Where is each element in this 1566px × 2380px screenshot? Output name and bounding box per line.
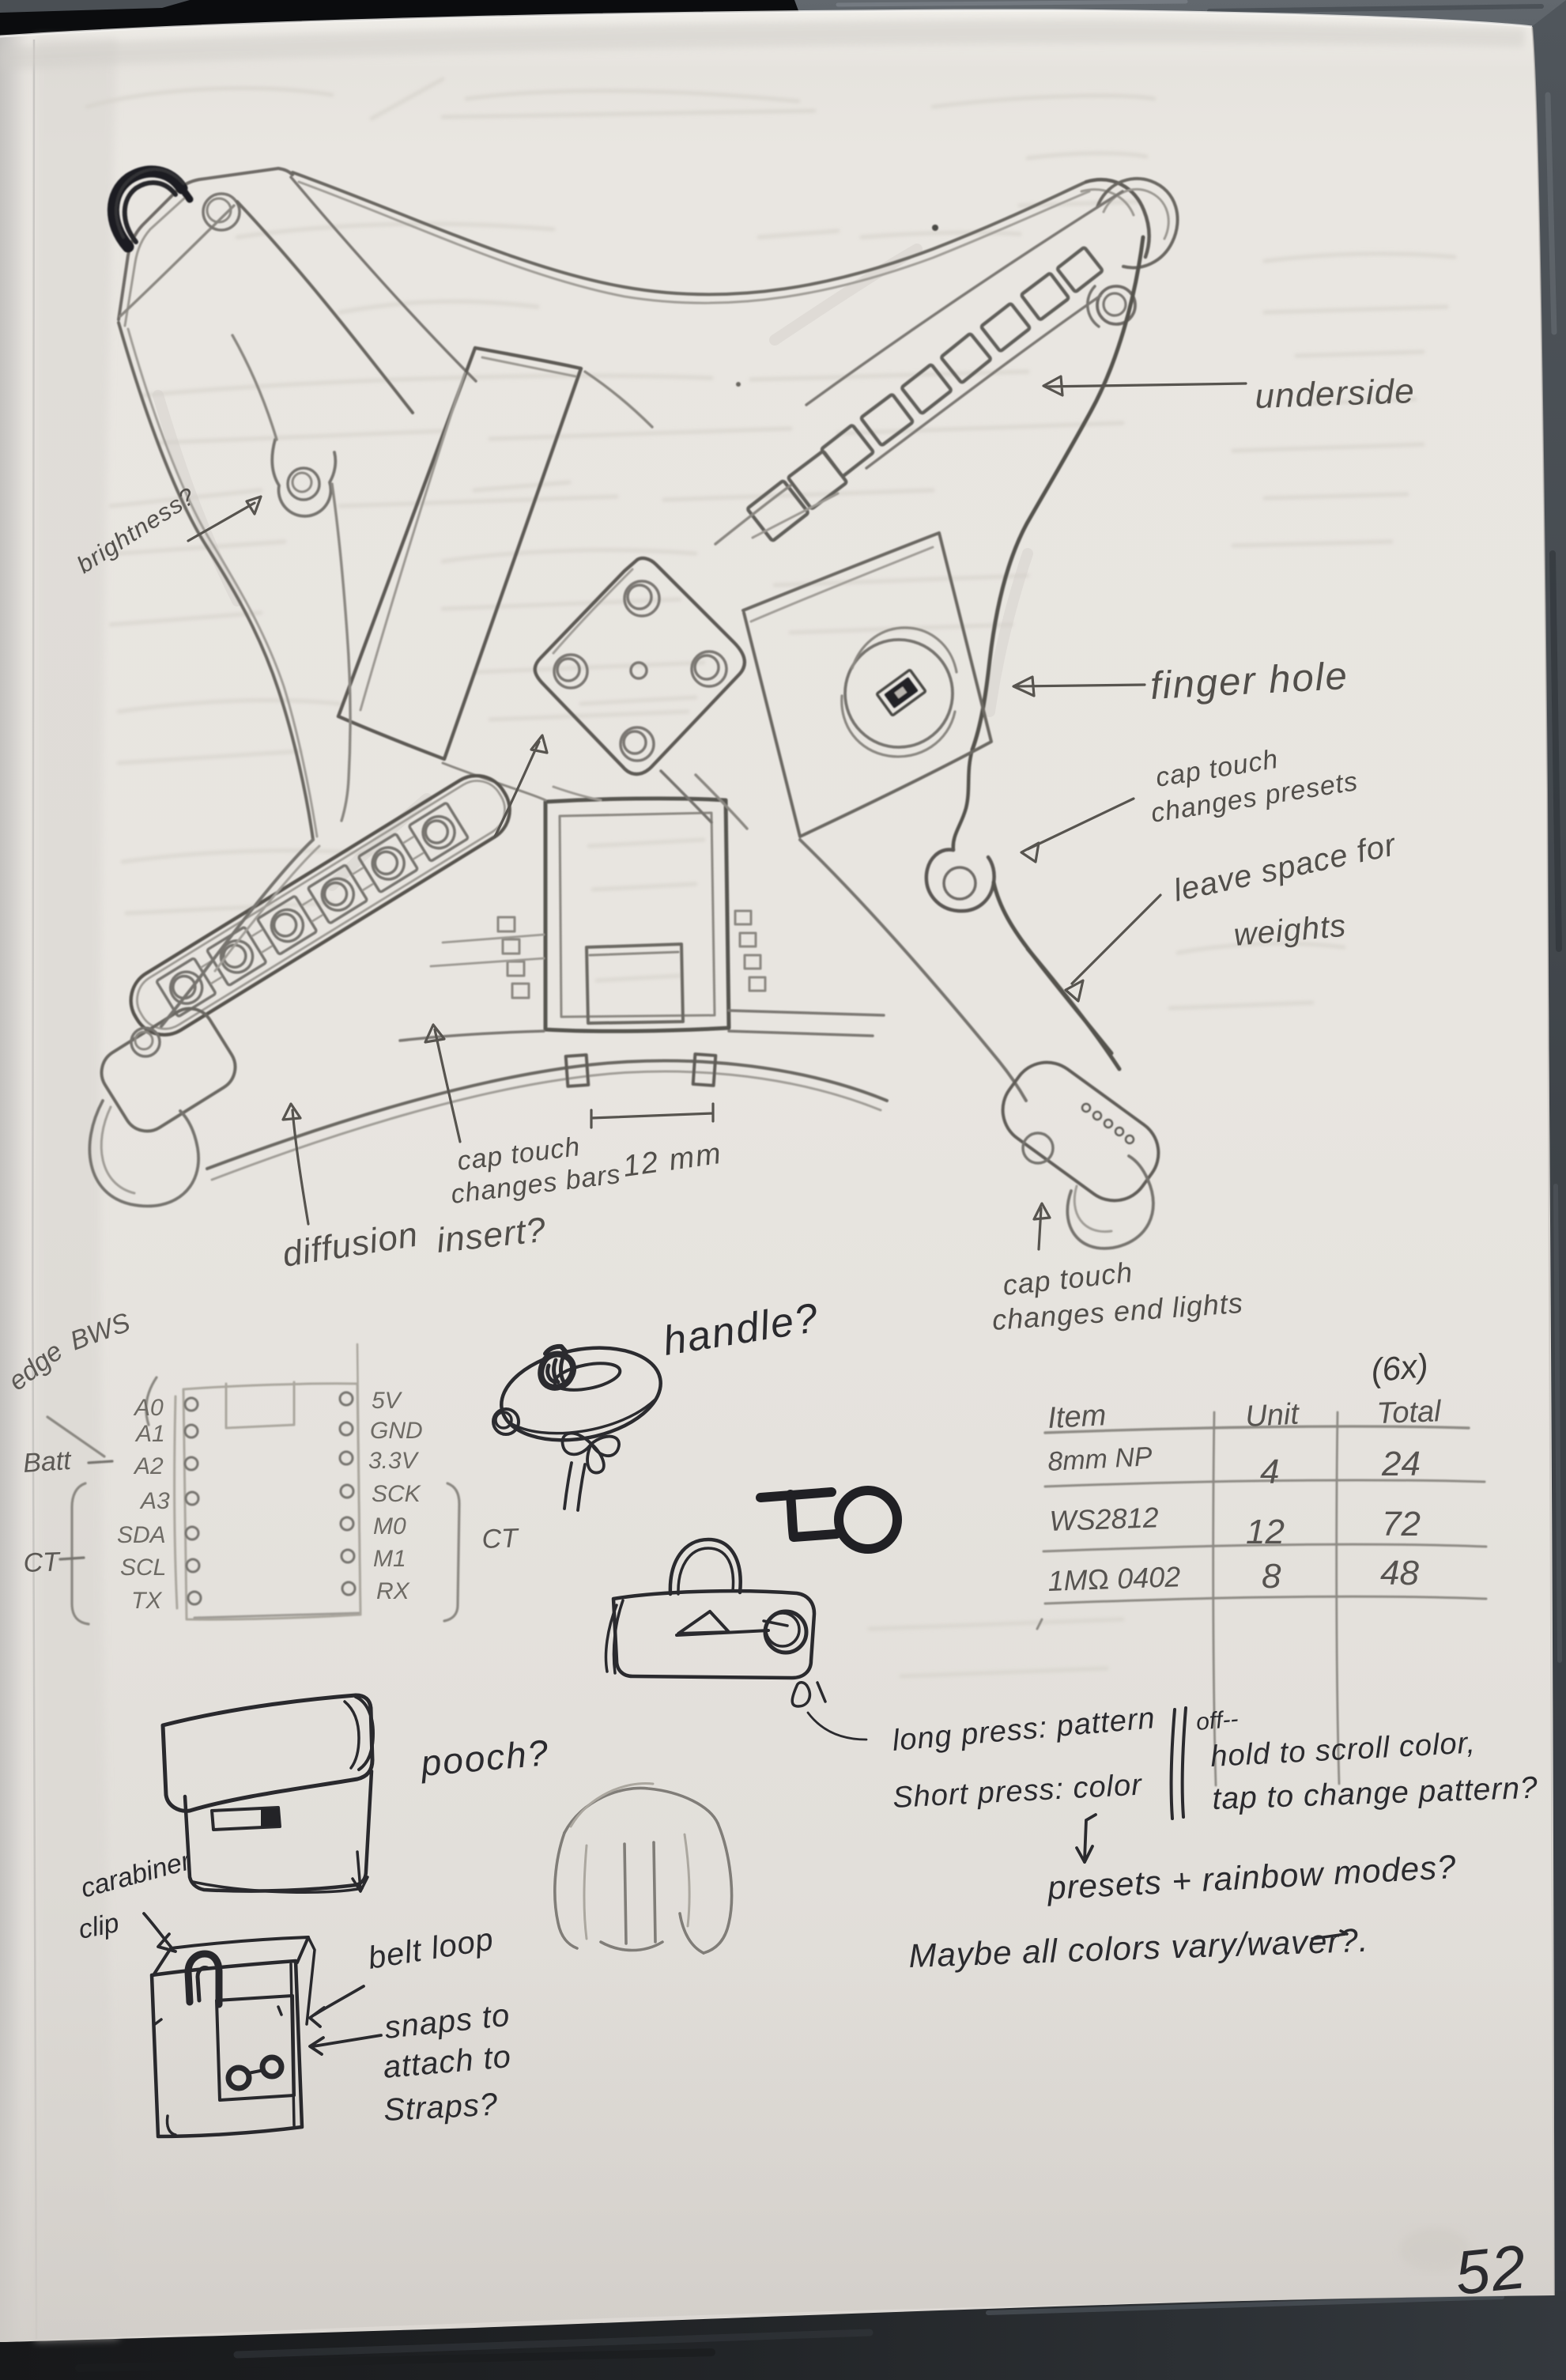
svg-text:CT: CT <box>23 1547 62 1578</box>
svg-text:24: 24 <box>1381 1445 1421 1483</box>
svg-text:8mm NP: 8mm NP <box>1047 1441 1153 1477</box>
svg-text:GND: GND <box>370 1418 423 1444</box>
svg-text:1MΩ 0402: 1MΩ 0402 <box>1047 1560 1181 1597</box>
svg-text:Batt: Batt <box>22 1445 74 1479</box>
svg-text:off--: off-- <box>1195 1706 1240 1736</box>
svg-text:72: 72 <box>1382 1505 1421 1543</box>
svg-text:4: 4 <box>1260 1453 1279 1491</box>
svg-text:48: 48 <box>1380 1554 1419 1592</box>
svg-text:3.3V: 3.3V <box>368 1448 420 1474</box>
svg-text:M1: M1 <box>373 1546 406 1572</box>
svg-text:WS2812: WS2812 <box>1049 1501 1159 1537</box>
svg-text:TX: TX <box>131 1588 162 1614</box>
svg-text:Unit: Unit <box>1244 1397 1300 1434</box>
svg-text:12: 12 <box>1246 1513 1285 1551</box>
svg-text:CT: CT <box>481 1523 520 1555</box>
svg-text:Straps?: Straps? <box>383 2087 499 2128</box>
svg-text:A3: A3 <box>139 1488 170 1514</box>
svg-text:52: 52 <box>1452 2231 1530 2308</box>
svg-text:8: 8 <box>1262 1557 1281 1596</box>
svg-text:Total: Total <box>1376 1395 1443 1430</box>
svg-text:A0: A0 <box>133 1395 164 1421</box>
svg-text:SCK: SCK <box>372 1481 422 1507</box>
svg-text:RX: RX <box>376 1578 410 1604</box>
svg-text:Item: Item <box>1047 1399 1107 1435</box>
svg-text:underside: underside <box>1255 372 1416 416</box>
svg-text:SCL: SCL <box>120 1555 166 1581</box>
svg-text:M0: M0 <box>373 1513 406 1539</box>
svg-text:SDA: SDA <box>117 1522 166 1548</box>
svg-text:A2: A2 <box>133 1453 164 1479</box>
svg-text:5V: 5V <box>372 1388 403 1414</box>
svg-text:A1: A1 <box>134 1421 165 1447</box>
svg-text:(6x): (6x) <box>1369 1347 1430 1389</box>
